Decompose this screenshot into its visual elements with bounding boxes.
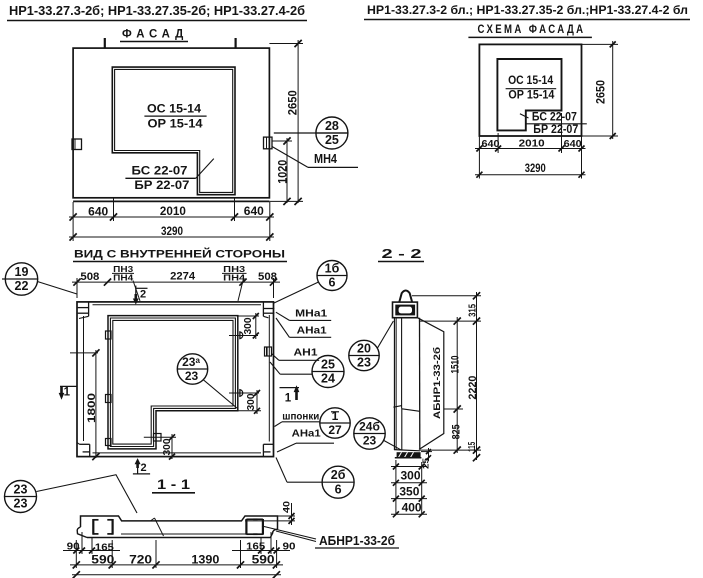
svg-text:720: 720 [129, 555, 152, 567]
svg-text:1800: 1800 [86, 393, 98, 423]
svg-text:23: 23 [363, 434, 377, 448]
svg-text:1510: 1510 [449, 356, 461, 374]
svg-text:ОР 15-14: ОР 15-14 [148, 116, 203, 130]
svg-text:1: 1 [64, 387, 71, 399]
svg-text:40: 40 [282, 501, 293, 513]
svg-text:БР 22-07: БР 22-07 [533, 124, 578, 136]
svg-text:27: 27 [328, 423, 342, 437]
svg-text:24: 24 [321, 372, 335, 386]
svg-text:2010: 2010 [160, 206, 186, 218]
svg-text:640: 640 [482, 138, 500, 150]
svg-text:90: 90 [67, 541, 80, 553]
svg-text:АН1: АН1 [294, 347, 318, 359]
svg-text:115: 115 [466, 442, 478, 452]
svg-text:640: 640 [88, 207, 108, 219]
svg-text:ОС 15-14: ОС 15-14 [147, 102, 201, 116]
svg-text:3290: 3290 [525, 163, 546, 175]
svg-text:МН4: МН4 [314, 152, 337, 166]
svg-text:640: 640 [244, 206, 264, 218]
svg-text:ФАСАД: ФАСАД [122, 27, 188, 41]
svg-text:350: 350 [399, 487, 419, 499]
svg-text:НР1-33.27.3-2б; НР1-33.27.35-2: НР1-33.27.3-2б; НР1-33.27.35-2б; НР1-33.… [9, 3, 305, 18]
svg-text:2010: 2010 [519, 138, 545, 150]
svg-text:2б: 2б [331, 468, 346, 482]
svg-text:ПН4: ПН4 [113, 273, 133, 283]
svg-text:90: 90 [283, 541, 296, 553]
svg-text:508: 508 [80, 271, 99, 283]
svg-text:2 - 2: 2 - 2 [382, 247, 422, 261]
svg-text:2220: 2220 [467, 376, 479, 400]
svg-text:508: 508 [258, 271, 277, 283]
svg-text:590: 590 [252, 555, 275, 567]
svg-text:825: 825 [450, 424, 462, 439]
svg-text:1: 1 [332, 409, 339, 423]
svg-text:ВИД С ВНУТРЕННЕЙ СТОРОНЫ: ВИД С ВНУТРЕННЕЙ СТОРОНЫ [74, 248, 285, 261]
svg-text:400: 400 [402, 502, 422, 514]
svg-text:2650: 2650 [288, 90, 300, 115]
svg-text:300: 300 [401, 470, 421, 482]
svg-text:1020: 1020 [277, 160, 289, 184]
svg-text:2: 2 [140, 289, 146, 301]
svg-text:МНа1: МНа1 [295, 308, 327, 320]
svg-text:165: 165 [95, 542, 114, 554]
svg-text:6: 6 [329, 276, 336, 290]
svg-text:ОС 15-14: ОС 15-14 [508, 75, 554, 87]
svg-text:ПН4: ПН4 [223, 273, 245, 283]
svg-text:590: 590 [91, 555, 114, 567]
svg-text:6: 6 [335, 482, 342, 496]
svg-text:20: 20 [357, 341, 371, 355]
svg-text:25: 25 [321, 357, 335, 371]
svg-text:300: 300 [242, 317, 254, 334]
svg-text:2274: 2274 [170, 271, 196, 283]
svg-text:640: 640 [564, 138, 582, 150]
svg-text:3290: 3290 [161, 226, 183, 238]
svg-text:СХЕМА ФАСАДА: СХЕМА ФАСАДА [478, 22, 586, 36]
svg-text:шпонки: шпонки [282, 411, 319, 423]
svg-text:БР 22-07: БР 22-07 [134, 178, 189, 192]
svg-text:28: 28 [325, 119, 339, 133]
svg-text:23: 23 [357, 356, 371, 370]
svg-text:24б: 24б [359, 419, 380, 433]
svg-text:1 - 1: 1 - 1 [157, 476, 190, 492]
svg-text:АБНР1-33-2б: АБНР1-33-2б [432, 347, 443, 419]
svg-text:БС 22-07: БС 22-07 [132, 164, 188, 178]
svg-text:25: 25 [325, 133, 339, 147]
svg-text:НР1-33.27.3-2 бл.; НР1-33.27.3: НР1-33.27.3-2 бл.; НР1-33.27.35-2 бл.;НР… [367, 5, 688, 17]
svg-text:1390: 1390 [191, 555, 219, 567]
svg-text:1: 1 [285, 393, 292, 405]
svg-text:23: 23 [14, 482, 28, 496]
svg-text:1б: 1б [325, 261, 340, 275]
svg-text:23: 23 [185, 369, 199, 383]
svg-text:АНа1: АНа1 [297, 324, 327, 336]
svg-text:АБНР1-33-2б: АБНР1-33-2б [319, 533, 395, 548]
svg-text:300: 300 [245, 393, 257, 410]
svg-text:315: 315 [466, 304, 478, 317]
svg-text:19: 19 [15, 265, 29, 279]
svg-text:165: 165 [246, 541, 265, 553]
svg-text:АНа1: АНа1 [292, 427, 321, 439]
svg-text:2: 2 [141, 462, 147, 474]
svg-text:ОР 15-14: ОР 15-14 [508, 90, 555, 102]
svg-text:2650: 2650 [596, 80, 608, 104]
svg-text:23: 23 [14, 497, 28, 511]
svg-text:22: 22 [15, 279, 29, 293]
svg-text:БС 22-07: БС 22-07 [532, 112, 577, 124]
svg-text:300: 300 [161, 438, 173, 455]
